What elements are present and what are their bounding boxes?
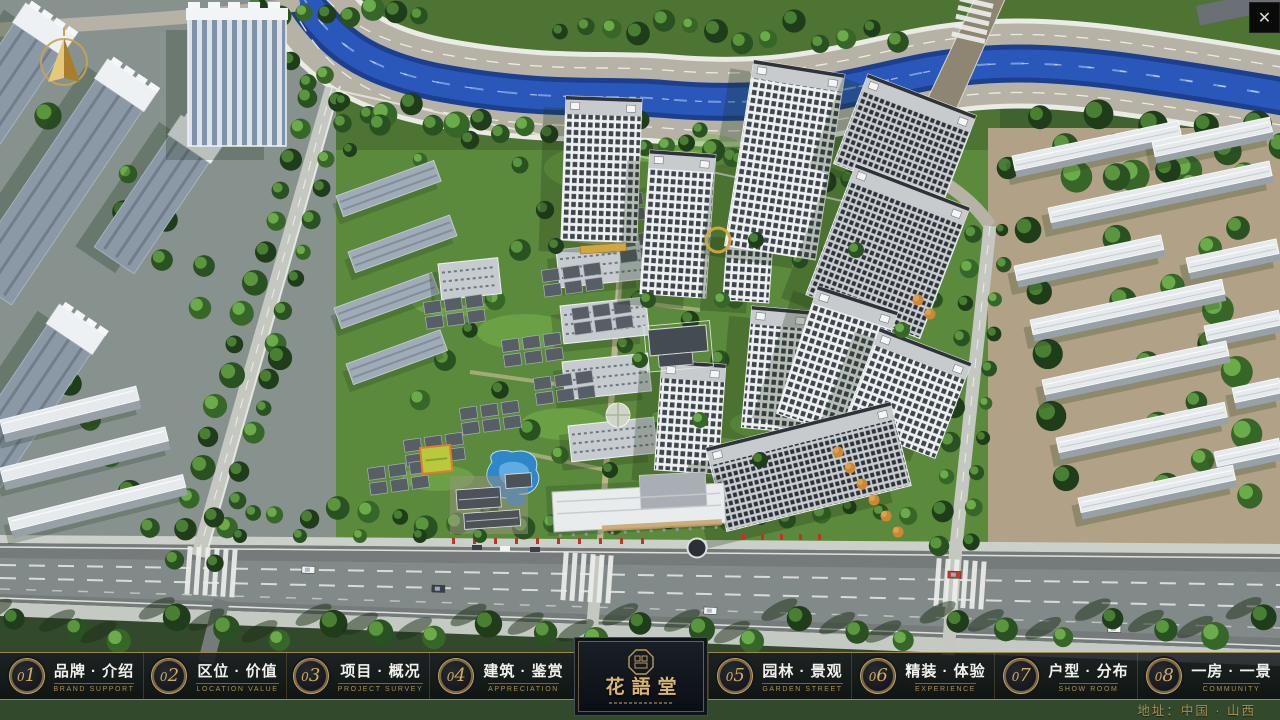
nav-label-zh: 一房 · 一景 [1191,660,1271,681]
nav-number-badge: 05 [717,658,753,694]
nav-number-badge: 06 [860,658,896,694]
nav-label-en: APPRECIATION [488,683,559,693]
close-icon: ✕ [1258,8,1271,28]
nav-label-en: COMMUNITY [1203,683,1261,693]
nav-item-garden[interactable]: 05 园林 · 景观 GARDEN STREET [708,653,851,699]
nav-label-en: GARDEN STREET [762,683,842,693]
nav-label-zh: 品牌 · 介绍 [54,660,134,681]
nav-label-zh: 园林 · 景观 [762,660,842,681]
project-address: 地址：中国 · 山西 [1137,700,1256,719]
masterplan-map[interactable] [0,0,1280,720]
nav-item-interior[interactable]: 06 精装 · 体验 EXPERIENCE [851,653,994,699]
nav-label-zh: 项目 · 概况 [340,660,420,681]
nav-number-badge: 07 [1003,658,1039,694]
nav-number-badge: 03 [293,658,329,694]
nav-label-zh: 区位 · 价值 [197,660,277,681]
nav-label-zh: 户型 · 分布 [1048,660,1128,681]
nav-label-en: PROJECT SURVEY [338,683,424,693]
nav-label-en: BRAND SUPPORT [54,683,135,693]
nav-label-en: SHOW ROOM [1059,683,1119,693]
nav-item-floorplan[interactable]: 07 户型 · 分布 SHOW ROOM [994,653,1137,699]
logo-caption-line [609,702,673,704]
nav-number-badge: 01 [9,658,45,694]
nav-number-badge: 08 [1146,658,1182,694]
nav-label-zh: 精装 · 体验 [905,660,985,681]
close-button[interactable]: ✕ [1249,2,1280,33]
nav-item-project[interactable]: 03 项目 · 概况 PROJECT SURVEY [286,653,429,699]
project-name: 花語堂 [598,678,683,697]
nav-label-en: LOCATION VALUE [196,683,278,693]
nav-label-en: EXPERIENCE [915,683,976,693]
nav-item-location[interactable]: 02 区位 · 价值 LOCATION VALUE [143,653,286,699]
nav-number-badge: 04 [438,658,474,694]
seal-icon [628,649,654,675]
nav-label-zh: 建筑 · 鉴赏 [483,660,563,681]
nav-item-brand[interactable]: 01 品牌 · 介绍 BRAND SUPPORT [0,653,143,699]
nav-item-views[interactable]: 08 一房 · 一景 COMMUNITY [1137,653,1280,699]
nav-number-badge: 02 [151,658,187,694]
sales-display-window: ✕ 01 品牌 · 介绍 BRAND SUPPORT 02 区位 · 价值 LO… [0,0,1280,720]
nav-item-architecture[interactable]: 04 建筑 · 鉴赏 APPRECIATION [429,653,572,699]
project-logo-panel[interactable]: 花語堂 [574,637,708,716]
